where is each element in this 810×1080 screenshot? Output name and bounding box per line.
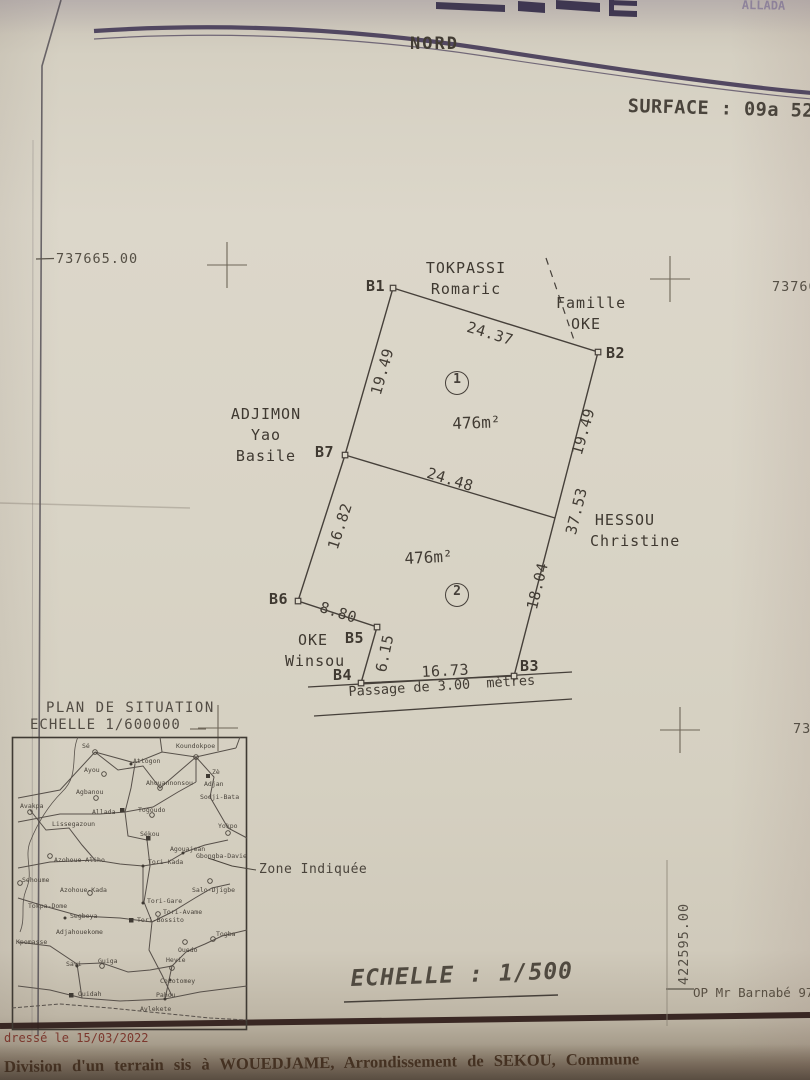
vertex-label: B7	[315, 443, 334, 461]
neighbor-name-line: Famille	[556, 293, 616, 314]
neighbor-name-line: Romaric	[420, 279, 512, 300]
vertex-label: B3	[520, 657, 539, 675]
parcel-number-badge: 1	[445, 371, 469, 395]
neighbor-name-line: Yao Basile	[226, 425, 306, 467]
map-place-label: Gbongba-Davie	[196, 852, 247, 860]
map-place-label: Avakpa	[20, 802, 43, 810]
map-place-label: Ouedo	[178, 946, 198, 954]
neighbor-name-label: TOKPASSIRomaric	[420, 258, 512, 300]
grid-coordinate-label: 737665.00	[56, 251, 138, 267]
map-place-label: Zè	[212, 768, 220, 776]
neighbor-name-line: Christine	[590, 531, 660, 552]
map-place-label: Sé	[82, 742, 90, 750]
neighbor-name-line: ADJIMON	[226, 404, 306, 425]
map-place-label: Agbanou	[76, 788, 103, 796]
grid-coordinate-label: 737	[793, 721, 810, 737]
map-place-label: Azohoue-Aliho	[54, 856, 105, 864]
map-place-label: Ouidah	[78, 990, 101, 998]
map-place-label: Ahouannonsou	[146, 779, 193, 787]
parcel-number-badge: 2	[445, 583, 469, 607]
neighbor-name-line: Winsou	[285, 651, 341, 672]
map-place-label: Salo-Djigbe	[192, 886, 235, 894]
map-place-label: Lissegazoun	[52, 820, 95, 828]
map-place-label: Togoudo	[138, 806, 165, 814]
parcel-area-label: 476m²	[404, 546, 453, 567]
map-place-label: Tori-Avame	[163, 908, 202, 916]
neighbor-name-line: TOKPASSI	[420, 258, 512, 279]
dimension-label: 16.73	[421, 661, 470, 681]
scanned-survey-plan-page: NORD SURFACE : 09a 52c ALLADA Passage de…	[0, 0, 810, 1080]
map-place-label: Tori-Bossito	[137, 916, 184, 924]
dimension-label: 8.80	[317, 598, 359, 627]
map-place-label: Avlekete	[140, 1005, 171, 1013]
map-place-label: Allada	[92, 808, 115, 816]
neighbor-name-label: HESSOUChristine	[590, 510, 660, 552]
dimension-label: 6.15	[372, 633, 398, 674]
neighbor-name-label: FamilleOKE	[556, 293, 616, 335]
vertex-label: B1	[366, 277, 385, 295]
dimension-label: 24.37	[465, 318, 516, 349]
map-place-label: Adjan	[204, 780, 224, 788]
map-place-label: Koundokpoe	[176, 742, 215, 750]
map-place-label: Kpomasse	[16, 938, 47, 946]
map-place-label: Pahou	[156, 991, 176, 999]
grid-coordinate-label: 422595.00	[676, 903, 692, 985]
map-place-label: Ayou	[84, 766, 100, 774]
dimension-label: 19.49	[367, 346, 397, 397]
neighbor-name-line: OKE	[285, 630, 341, 651]
map-place-label: Adjahouekome	[56, 928, 103, 936]
vertex-label: B2	[606, 344, 625, 362]
dimension-label: 16.82	[324, 501, 356, 552]
dimension-label: 18.04	[523, 561, 552, 612]
map-place-label: Segbeya	[70, 912, 97, 920]
dimension-label: 19.49	[568, 406, 598, 457]
parcel-area-label: 476m²	[452, 412, 501, 433]
neighbor-name-line: HESSOU	[590, 510, 660, 531]
bottom-scan-shadow	[0, 1044, 810, 1080]
map-place-label: Hevie	[166, 956, 186, 964]
neighbor-name-label: OKEWinsou	[285, 630, 341, 672]
dimension-label: 37.53	[562, 486, 591, 537]
map-place-label: Savi	[66, 960, 82, 968]
map-place-label: Sehoume	[22, 876, 49, 884]
map-place-label: Tokpa-Dome	[28, 902, 67, 910]
neighbor-name-line: OKE	[556, 314, 616, 335]
map-place-label: Azohoue-Kada	[60, 886, 107, 894]
map-place-label: Tori-Gare	[147, 897, 182, 905]
map-place-label: Attogon	[133, 757, 160, 765]
map-place-label: Tori-Kada	[148, 858, 183, 866]
map-place-label: Sékou	[140, 830, 160, 838]
neighbor-name-label: ADJIMONYao Basile	[226, 404, 306, 467]
dimension-label: 24.48	[425, 464, 476, 495]
map-place-label: Cocotomey	[160, 977, 195, 985]
map-place-label: Yokpo	[218, 822, 238, 830]
grid-coordinate-label: 737665	[772, 279, 810, 295]
map-place-label: Guiga	[98, 957, 118, 965]
vertex-label: B5	[345, 629, 364, 647]
label-layer: 737665.00737665737422595.00B1B2B3B4B5B6B…	[0, 0, 810, 1080]
vertex-label: B6	[269, 590, 288, 608]
map-place-label: Togba	[216, 930, 236, 938]
map-place-label: Sodji-Bata	[200, 793, 239, 801]
